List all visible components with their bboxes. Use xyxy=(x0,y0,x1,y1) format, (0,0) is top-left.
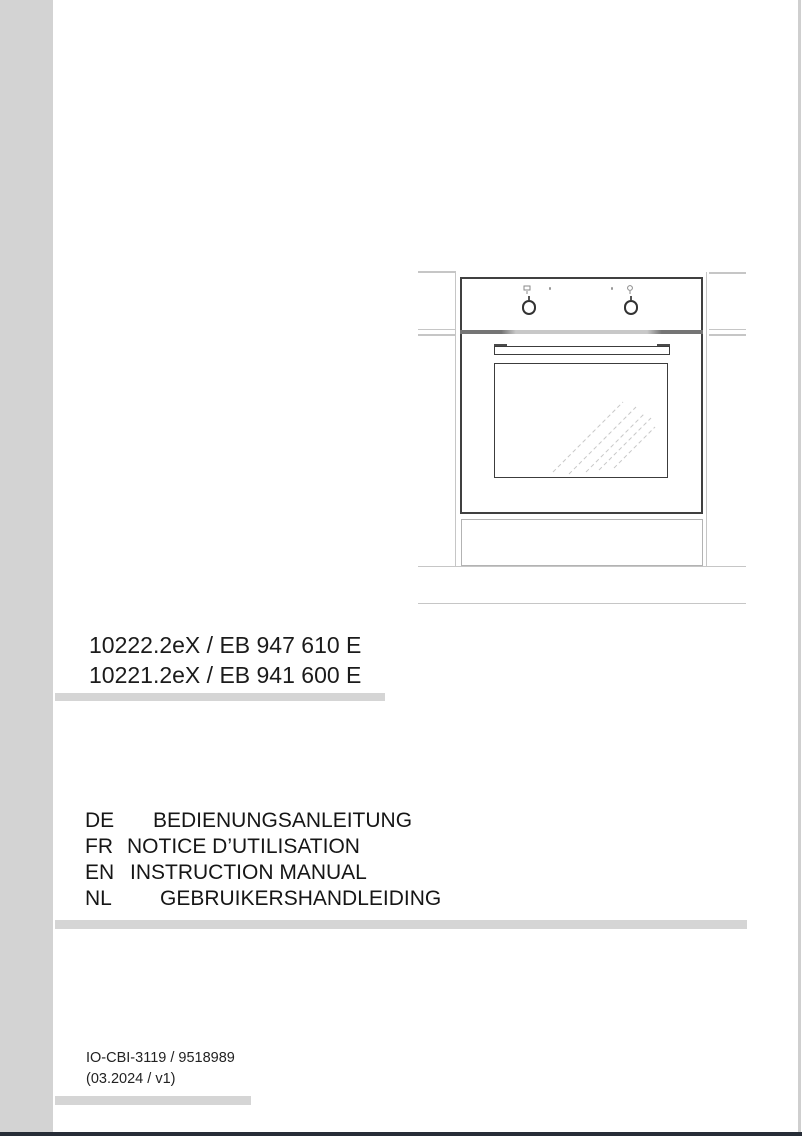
document-code-block: IO-CBI-3119 / 9518989 (03.2024 / v1) xyxy=(86,1048,235,1090)
temperature-knob xyxy=(624,300,639,315)
page-right-edge-line xyxy=(798,0,801,1136)
cabinet-line xyxy=(709,329,746,331)
cabinet-line xyxy=(455,271,457,567)
cabinet-line xyxy=(418,334,455,336)
divider-bar-footer xyxy=(55,1096,251,1105)
left-scan-margin-strip xyxy=(0,0,53,1136)
language-row-fr: FRNOTICE D’UTILISATION xyxy=(85,834,441,860)
cabinet-line xyxy=(709,272,746,274)
cabinet-line xyxy=(706,272,708,567)
manual-cover-page: 10222.2eX / EB 947 610 E 10221.2eX / EB … xyxy=(0,0,802,1136)
cabinet-line xyxy=(709,334,746,336)
divider-bar-languages xyxy=(55,920,747,929)
language-row-nl: NLGEBRUIKERSHANDLEIDING xyxy=(85,886,441,912)
function-knob xyxy=(522,300,537,315)
model-numbers: 10222.2eX / EB 947 610 E 10221.2eX / EB … xyxy=(89,630,361,690)
language-code: FR xyxy=(85,834,127,860)
document-code: IO-CBI-3119 / 9518989 xyxy=(86,1048,235,1069)
cabinet-line xyxy=(418,566,746,568)
language-code: NL xyxy=(85,886,160,912)
oven-illustration xyxy=(410,255,755,607)
language-code: EN xyxy=(85,860,130,886)
manual-title-nl: GEBRUIKERSHANDLEIDING xyxy=(160,887,441,910)
language-code: DE xyxy=(85,808,153,834)
manual-title-en: INSTRUCTION MANUAL xyxy=(130,861,367,884)
oven-door-handle xyxy=(494,346,670,355)
indicator-light xyxy=(549,287,552,290)
cabinet-line xyxy=(418,329,455,331)
language-list: DEBEDIENUNGSANLEITUNG FRNOTICE D’UTILISA… xyxy=(85,808,441,912)
cabinet-line xyxy=(418,603,746,605)
model-line-2: 10221.2eX / EB 941 600 E xyxy=(89,660,361,690)
language-row-de: DEBEDIENUNGSANLEITUNG xyxy=(85,808,441,834)
model-line-1: 10222.2eX / EB 947 610 E xyxy=(89,630,361,660)
oven-door-glass xyxy=(494,363,668,478)
manual-title-fr: NOTICE D’UTILISATION xyxy=(127,835,360,858)
indicator-light xyxy=(611,287,614,290)
cabinet-drawer-panel xyxy=(461,519,704,566)
manual-title-de: BEDIENUNGSANLEITUNG xyxy=(153,809,412,832)
oven-vent-strip xyxy=(460,330,703,334)
page-bottom-edge-strip xyxy=(0,1132,802,1136)
language-row-en: ENINSTRUCTION MANUAL xyxy=(85,860,441,886)
divider-bar-models xyxy=(55,693,385,701)
oven-function-icon xyxy=(522,283,532,294)
temperature-icon xyxy=(625,283,635,294)
document-revision: (03.2024 / v1) xyxy=(86,1069,235,1090)
cabinet-line xyxy=(418,271,455,273)
